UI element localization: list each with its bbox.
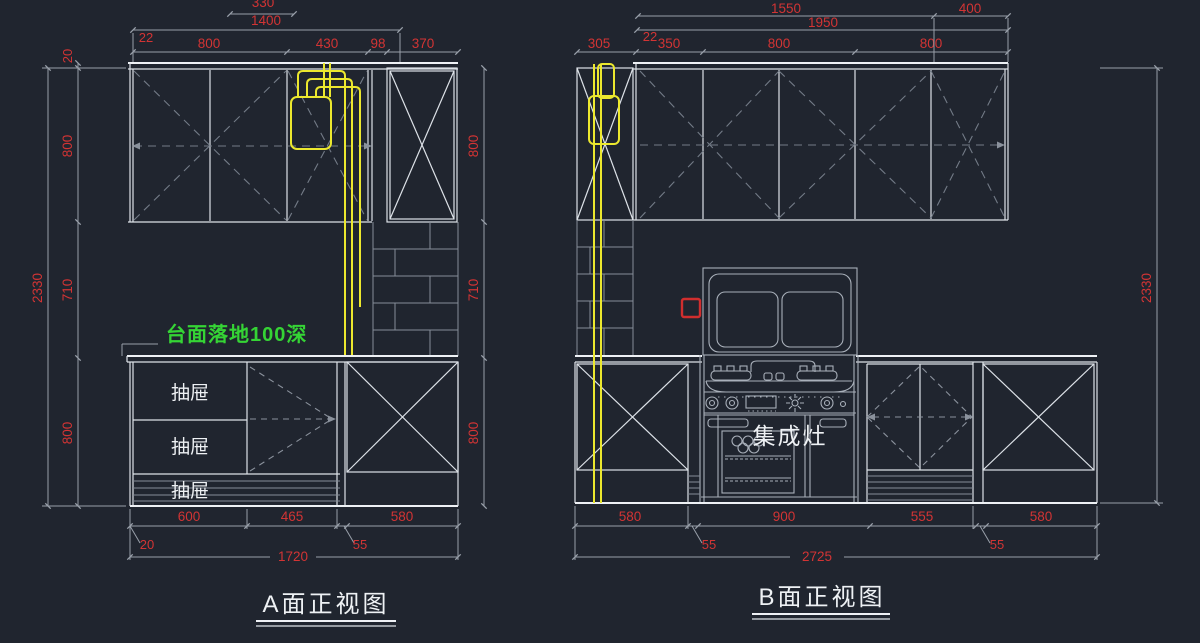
dim-text[interactable]: 350: [658, 36, 681, 51]
backsplash-tiles-a[interactable]: [373, 222, 458, 356]
dim-text[interactable]: 2330: [30, 273, 45, 303]
dim-text[interactable]: 710: [466, 279, 481, 302]
dim-text[interactable]: 22: [643, 29, 657, 44]
dim-text[interactable]: 430: [316, 36, 339, 51]
view-a-title: A面正视图: [262, 591, 389, 618]
dim-text[interactable]: 370: [412, 36, 435, 51]
dim-text[interactable]: 710: [60, 279, 75, 302]
stove-label[interactable]: 集成灶: [753, 423, 828, 449]
dim-text[interactable]: 400: [959, 1, 982, 16]
dim-text[interactable]: 305: [588, 36, 611, 51]
dim-text[interactable]: 1550: [771, 1, 801, 16]
dimensions-a[interactable]: 330 1400 22 800 430 98 370 2330 20 800 7…: [30, 0, 484, 564]
flame-symbol: [786, 394, 804, 412]
backsplash-tiles-b[interactable]: [577, 220, 633, 356]
dim-text[interactable]: 800: [466, 422, 481, 445]
cad-drawing-canvas[interactable]: 台面落地100深: [0, 0, 1200, 643]
dim-text[interactable]: 555: [911, 509, 934, 524]
integrated-stove[interactable]: 集成灶: [700, 268, 858, 503]
base-cabinets-a[interactable]: 抽屉 抽屉 抽屉: [130, 362, 458, 506]
hood-grille-left: [717, 292, 778, 347]
dim-text[interactable]: 330: [252, 0, 275, 10]
water-heater[interactable]: [291, 97, 331, 149]
dimensions-b[interactable]: 1550 400 1950 22 305 350 800 800 2330 58…: [575, 1, 1163, 564]
dim-text[interactable]: 580: [1030, 509, 1053, 524]
drawer-label[interactable]: 抽屉: [171, 480, 209, 502]
upper-cabinets-a[interactable]: [128, 63, 458, 222]
dim-text[interactable]: 20: [140, 537, 154, 552]
base-cabinets-b[interactable]: [575, 362, 1097, 503]
dim-text[interactable]: 55: [990, 537, 1004, 552]
countertop-note[interactable]: 台面落地100深: [166, 322, 307, 346]
dim-text[interactable]: 600: [178, 509, 201, 524]
dim-text[interactable]: 800: [466, 135, 481, 158]
dim-text[interactable]: 2330: [1139, 273, 1154, 303]
countertop-a[interactable]: [127, 356, 458, 362]
countertop-b[interactable]: [575, 356, 1097, 362]
gas-pipes-a[interactable]: [291, 63, 360, 356]
dim-text[interactable]: 580: [619, 509, 642, 524]
dim-text[interactable]: 900: [773, 509, 796, 524]
view-b-elevation[interactable]: 集成灶: [575, 1, 1163, 619]
dim-text[interactable]: 800: [920, 36, 943, 51]
dim-text[interactable]: 580: [391, 509, 414, 524]
dim-text[interactable]: 55: [353, 537, 367, 552]
dim-text[interactable]: 1400: [251, 13, 281, 28]
drawer-label[interactable]: 抽屉: [171, 436, 209, 458]
drawer-label[interactable]: 抽屉: [171, 382, 209, 404]
dim-text[interactable]: 800: [198, 36, 221, 51]
dim-text[interactable]: 1720: [278, 549, 308, 564]
dim-text[interactable]: 20: [60, 49, 75, 63]
dim-text[interactable]: 465: [281, 509, 304, 524]
hood-grille-right: [782, 292, 843, 347]
upper-cabinets-b[interactable]: [577, 63, 1008, 220]
dim-text[interactable]: 800: [60, 422, 75, 445]
dim-text[interactable]: 22: [139, 30, 153, 45]
dim-text[interactable]: 98: [370, 36, 385, 51]
dim-text[interactable]: 800: [60, 135, 75, 158]
power-socket-icon[interactable]: [682, 299, 700, 317]
dim-text[interactable]: 800: [768, 36, 791, 51]
view-a-elevation[interactable]: 台面落地100深: [30, 0, 484, 626]
dim-text[interactable]: 2725: [802, 549, 832, 564]
dim-text[interactable]: 55: [702, 537, 716, 552]
view-b-title: B面正视图: [758, 584, 885, 611]
dim-text[interactable]: 1950: [808, 15, 838, 30]
